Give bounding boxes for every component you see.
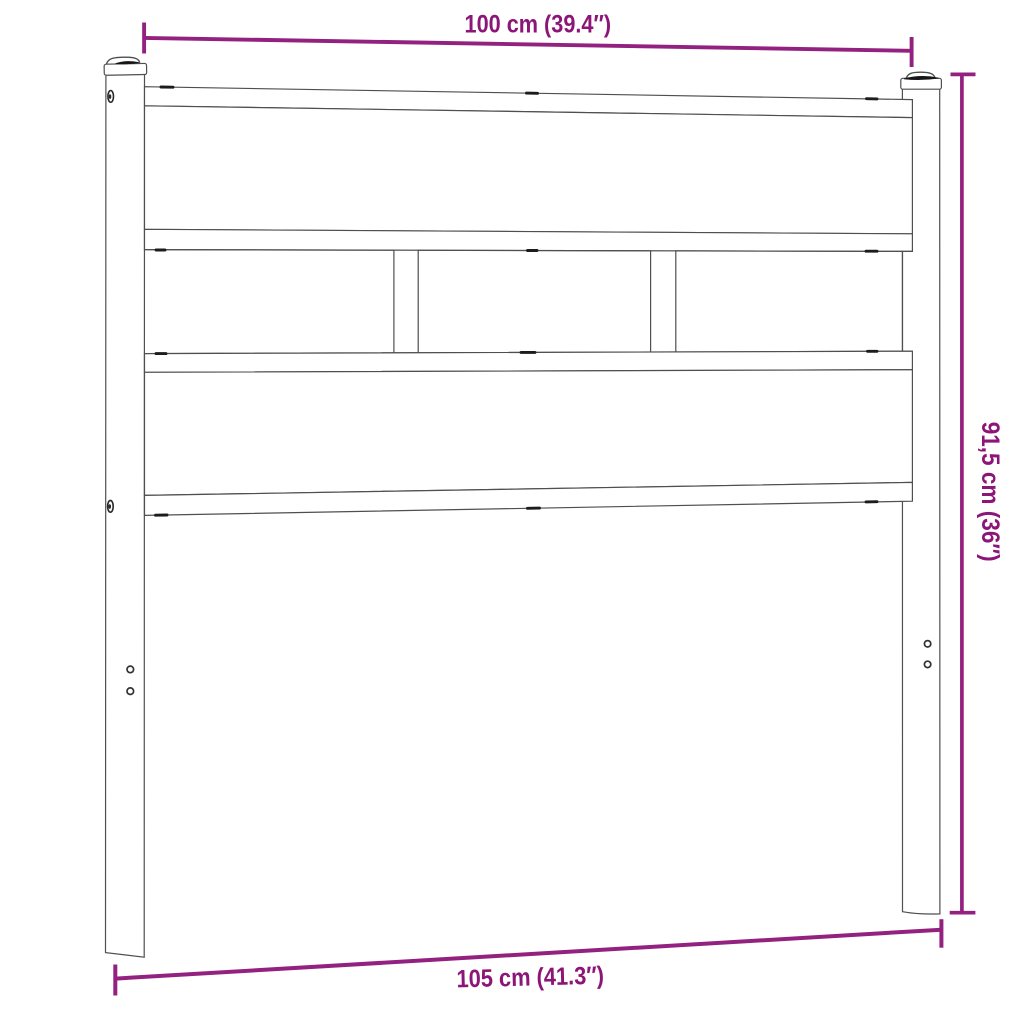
- svg-text:105 cm (41.3″): 105 cm (41.3″): [456, 962, 604, 994]
- svg-text:91,5 cm (36″): 91,5 cm (36″): [976, 422, 1004, 562]
- svg-text:100 cm (39.4″): 100 cm (39.4″): [465, 11, 612, 39]
